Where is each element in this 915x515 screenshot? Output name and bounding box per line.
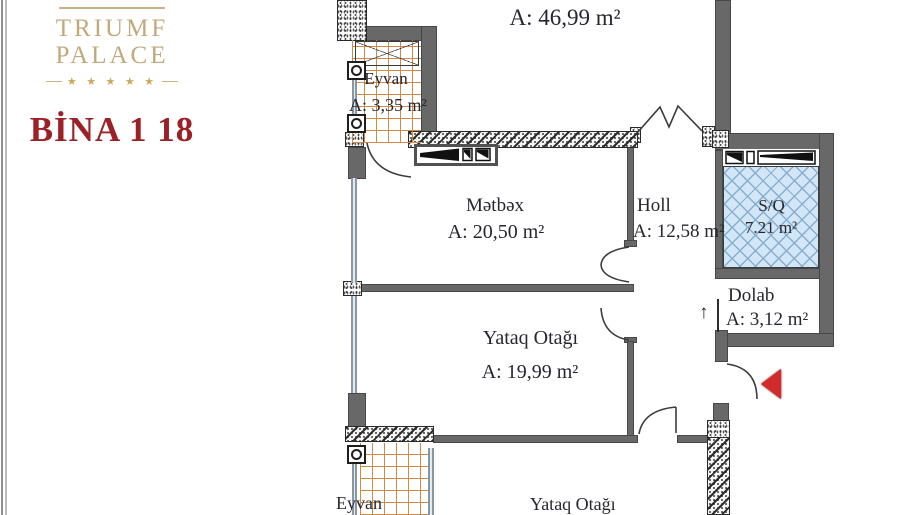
room-area-dolab: A: 3,12 m² [726, 310, 824, 330]
room-label-sq: S/Q [739, 197, 804, 215]
room-label-yataq2: Yataq Otağı [530, 495, 650, 514]
room-area-metbex: A: 20,50 m² [435, 222, 557, 243]
door-arc-balcony-kitchen [367, 143, 411, 177]
door-arc-kitchen-holl-upper [601, 247, 629, 265]
room-area-eyvan-top: A: 3,35 m² [338, 96, 438, 115]
room-area-yataq1: A: 19,99 m² [446, 362, 614, 383]
room-area-living: A: 46,99 m² [480, 6, 650, 30]
entrance-arrow-icon [761, 369, 781, 399]
door-arc-entrance [727, 364, 757, 399]
door-arc-kitchen-holl-lower [601, 265, 629, 282]
floor-plan-page: TRIUMF PALACE ★ ★ ★ ★ ★ BİNA 1 18 [0, 0, 915, 515]
room-area-sq: 7.21 m² [731, 219, 811, 237]
room-label-eyvan-top: Eyvan [350, 70, 422, 88]
dolab-door-line [717, 299, 719, 332]
room-label-metbex: Mətbəx [440, 196, 550, 216]
room-label-eyvan-bottom: Eyvan [336, 494, 406, 513]
room-label-yataq1: Yataq Otağı [448, 328, 613, 349]
door-arc-holl-bedroom2 [639, 407, 676, 434]
door-arcs-layer [0, 0, 915, 515]
dolab-direction-arrow: ↑ [699, 303, 709, 323]
room-label-holl: Holl [637, 196, 697, 216]
room-label-dolab: Dolab [728, 286, 808, 306]
room-area-holl: A: 12,58 m² [633, 222, 738, 242]
